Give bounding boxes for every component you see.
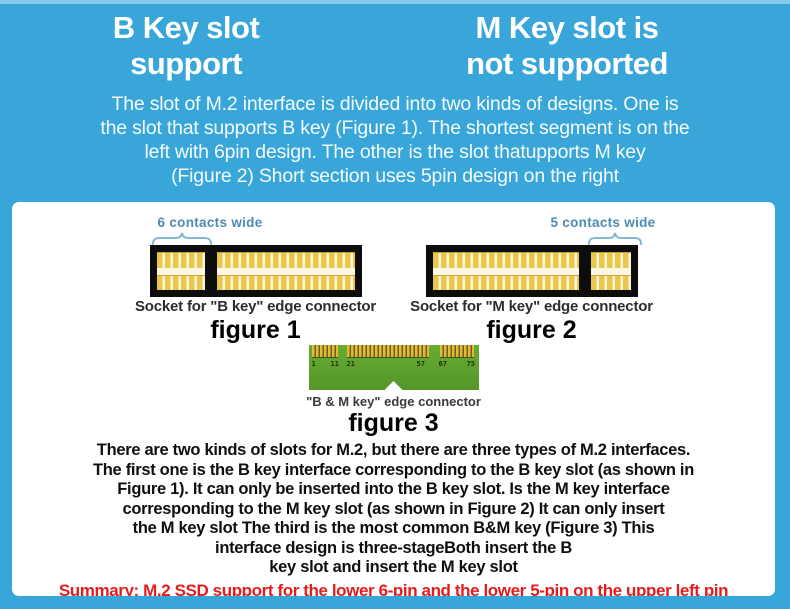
intro-line: the slot that supports B key (Figure 1).… — [0, 116, 790, 140]
body-line: There are two kinds of slots for M.2, bu… — [12, 441, 775, 461]
body-paragraph: There are two kinds of slots for M.2, bu… — [12, 441, 775, 578]
heading-m-key-slot: M Key slot is not supported — [372, 10, 762, 82]
figures-panel: 6 contacts wide Socket for "B key" — [12, 202, 775, 596]
pin-number: 57 — [417, 360, 425, 368]
figure-3-label: figure 3 — [12, 410, 775, 437]
pin-number: 67 — [439, 360, 447, 368]
brace-icon — [588, 232, 642, 245]
figure-1-caption: Socket for "B key" edge connector — [130, 297, 382, 317]
figure-1-block: 6 contacts wide Socket for "B key" — [130, 215, 382, 344]
pcb-contact-segment — [312, 345, 338, 358]
figure-2-annotation-area: 5 contacts wide — [406, 215, 658, 245]
pin-row — [433, 252, 579, 268]
summary-text: Summary: M.2 SSD support for the lower 6… — [12, 581, 775, 597]
intro-line: left with 6pin design. The other is the … — [0, 140, 790, 164]
figure-1-label: figure 1 — [130, 317, 382, 344]
pcb-notch — [385, 381, 403, 390]
headings-row: B Key slot support M Key slot is not sup… — [0, 10, 790, 82]
b-key-socket-diagram — [150, 245, 362, 297]
heading-b-key-slot: B Key slot support — [0, 10, 372, 82]
five-contacts-label: 5 contacts wide — [550, 215, 655, 230]
figure-1-annotation-area: 6 contacts wide — [130, 215, 382, 245]
body-line: key slot and insert the M key slot — [12, 558, 775, 578]
m-key-socket-diagram — [426, 245, 638, 297]
six-contacts-label: 6 contacts wide — [158, 215, 263, 230]
figure-3-block: 1 11 21 57 67 75 "B & M key" edge connec… — [12, 345, 775, 437]
pin-row — [217, 275, 355, 291]
body-line: the M key slot The third is the most com… — [12, 519, 775, 539]
b-key-short-segment — [157, 252, 205, 290]
figure-2-label: figure 2 — [406, 317, 658, 344]
pcb-contact-segment — [347, 345, 429, 358]
pin-row — [157, 275, 205, 291]
m-key-long-segment — [433, 252, 579, 290]
socket-figures-row: 6 contacts wide Socket for "B key" — [12, 215, 775, 344]
pin-number: 75 — [467, 360, 475, 368]
top-edge-highlight — [0, 0, 790, 4]
pin-number: 1 — [312, 360, 316, 368]
figure-2-caption: Socket for "M key" edge connector — [406, 297, 658, 317]
intro-line: The slot of M.2 interface is divided int… — [0, 92, 790, 116]
body-line: Figure 1). It can only be inserted into … — [12, 480, 775, 500]
figure-2-block: 5 contacts wide Socket for "M key" — [406, 215, 658, 344]
heading-m-key-line1: M Key slot is — [372, 10, 762, 46]
brace-icon — [152, 232, 212, 245]
intro-line: (Figure 2) Short section uses 5pin desig… — [0, 164, 790, 188]
pin-number: 21 — [347, 360, 355, 368]
pin-row — [591, 252, 631, 268]
body-line: interface design is three-stageBoth inse… — [12, 539, 775, 559]
figure-3-caption: "B & M key" edge connector — [12, 393, 775, 410]
pin-row — [157, 252, 205, 268]
body-line: The first one is the B key interface cor… — [12, 461, 775, 481]
bm-key-edge-connector-diagram: 1 11 21 57 67 75 — [309, 345, 479, 390]
intro-paragraph: The slot of M.2 interface is divided int… — [0, 92, 790, 188]
pcb-contact-segment — [440, 345, 474, 358]
pin-row — [591, 275, 631, 291]
pin-row — [433, 275, 579, 291]
heading-m-key-line2: not supported — [372, 46, 762, 82]
heading-b-key-line1: B Key slot — [0, 10, 372, 46]
pin-number: 11 — [331, 360, 339, 368]
m2-slot-infographic: B Key slot support M Key slot is not sup… — [0, 0, 790, 596]
heading-b-key-line2: support — [0, 46, 372, 82]
b-key-long-segment — [217, 252, 355, 290]
m-key-short-segment — [591, 252, 631, 290]
body-line: corresponding to the M key slot (as show… — [12, 500, 775, 520]
pin-row — [217, 252, 355, 268]
